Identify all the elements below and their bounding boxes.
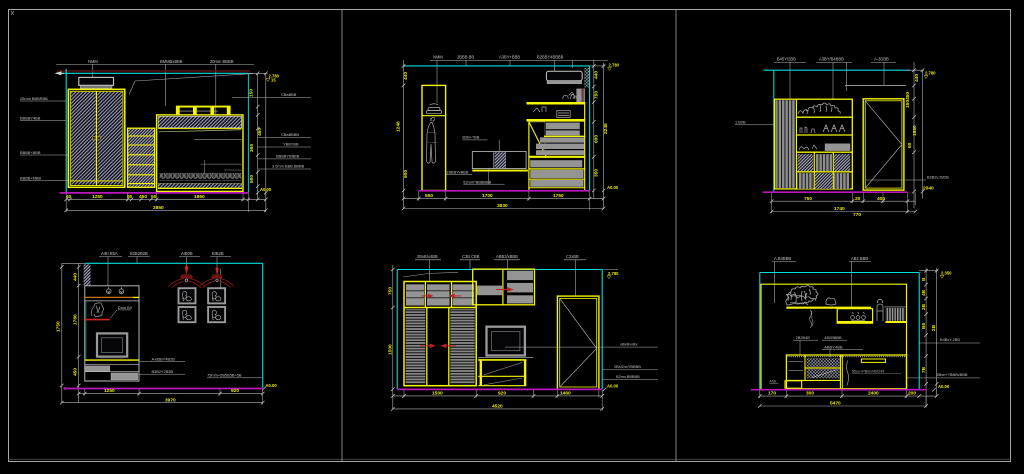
svg-text:A-B5BY4B2B: A-B5BY4B2B [152, 357, 176, 362]
svg-text:xBxBvxBx: xBxBvxBx [620, 341, 638, 346]
svg-text:B2mv.BBBBB: B2mv.BBBBB [616, 374, 640, 379]
svg-text:450: 450 [73, 368, 79, 376]
svg-text:2B: 2B [931, 324, 937, 331]
svg-text:B!B2B: B!B2B [212, 251, 224, 256]
svg-text:CBaBBB: CBaBBB [281, 92, 297, 97]
svg-text:770: 770 [853, 212, 861, 218]
svg-text:C2xBB: C2xBB [566, 254, 579, 259]
svg-text:1750: 1750 [553, 193, 564, 199]
svg-text:BMMBxBBB: BMMBxBBB [160, 59, 183, 64]
svg-text:2B2B4B: 2B2B4B [796, 335, 811, 340]
svg-text:200: 200 [908, 391, 916, 397]
svg-text:2.780: 2.780 [608, 271, 619, 276]
svg-text:YBBYBB: YBBYBB [283, 141, 299, 146]
svg-text:1500: 1500 [387, 344, 393, 355]
svg-text:365: 365 [249, 144, 255, 152]
svg-text:A0.00: A0.00 [607, 185, 619, 190]
svg-text:1850: 1850 [912, 125, 918, 136]
svg-text:B: B [921, 277, 927, 281]
svg-text:350: 350 [594, 169, 600, 177]
svg-text:1750: 1750 [56, 321, 62, 332]
svg-text:CBaBBBB: CBaBBBB [281, 132, 299, 137]
svg-text:A0.00: A0.00 [266, 383, 278, 388]
svg-text:920: 920 [231, 388, 239, 394]
svg-text:BBBBY4BB: BBBBY4BB [20, 115, 41, 120]
svg-text:B2BBY4BBBB: B2BBY4BBBB [537, 55, 564, 60]
svg-text:4B2BBBB: 4B2BBBB [824, 335, 842, 340]
svg-text:750: 750 [804, 196, 812, 202]
svg-text:20mm BBBB: 20mm BBBB [210, 59, 234, 64]
svg-text:1500: 1500 [432, 390, 443, 396]
svg-text:920: 920 [498, 390, 506, 396]
svg-text:3970: 3970 [165, 397, 176, 403]
svg-text:600: 600 [403, 170, 409, 178]
svg-text:3830: 3830 [497, 203, 508, 209]
svg-text:7B: 7B [921, 366, 927, 373]
svg-text:440: 440 [914, 74, 920, 82]
svg-text:450: 450 [139, 194, 147, 200]
svg-text:B5: B5 [921, 323, 927, 329]
svg-text:NMM: NMM [88, 59, 98, 64]
svg-text:NMM: NMM [433, 55, 443, 60]
svg-text:400: 400 [877, 196, 885, 202]
svg-text:150450: 150450 [905, 92, 911, 108]
svg-text:450: 450 [257, 128, 263, 136]
svg-text:1780: 1780 [73, 314, 79, 325]
svg-text:A3BY/B4BBB: A3BY/B4BBB [819, 57, 844, 62]
svg-text:440: 440 [403, 72, 409, 80]
svg-text:5Bxn+7BBBvBBB: 5Bxn+7BBBvBBB [937, 372, 968, 377]
svg-text:2.780: 2.780 [925, 71, 936, 76]
svg-text:A0.00: A0.00 [938, 384, 950, 389]
svg-text:4B: 4B [921, 289, 927, 296]
svg-text:750: 750 [387, 287, 393, 295]
svg-text:1BBBYvBBB: 1BBBYvBBB [446, 169, 468, 174]
svg-text:52mm*BBBBBB: 52mm*BBBBBB [463, 179, 491, 184]
svg-text:15: 15 [271, 78, 276, 83]
svg-text:BBBBYBBBB: BBBBYBBBB [276, 153, 300, 158]
svg-text:3.5mm BBB.BBBB: 3.5mm BBB.BBBB [272, 163, 305, 168]
svg-text:20: 20 [855, 196, 861, 202]
svg-text:B2B2B2B: B2B2B2B [130, 251, 148, 256]
svg-text:ABB2/xBBB: ABB2/xBBB [496, 254, 518, 259]
svg-text:170: 170 [768, 391, 776, 397]
svg-text:Dmn BX: Dmn BX [118, 305, 133, 310]
svg-text:1460: 1460 [560, 390, 571, 396]
svg-text:2850: 2850 [153, 205, 164, 211]
svg-text:750: 750 [594, 91, 600, 99]
svg-text:A0.00: A0.00 [260, 187, 272, 192]
svg-text:A5B: A5B [770, 380, 777, 384]
svg-text:BBBB+MBB: BBBB+MBB [20, 175, 41, 180]
svg-text:5470: 5470 [830, 401, 841, 407]
svg-text:A0.00: A0.00 [607, 384, 619, 389]
svg-text:25mm BBBRBB: 25mm BBBRBB [20, 96, 48, 101]
svg-text:1250: 1250 [92, 194, 103, 200]
svg-text:2040: 2040 [923, 186, 934, 192]
svg-text:2.350: 2.350 [941, 270, 952, 275]
svg-text:A.B4BBB: A.B4BBB [774, 256, 791, 261]
svg-text:60: 60 [907, 142, 913, 148]
svg-text:2Bx/2xxYBBBB: 2Bx/2xxYBBBB [614, 364, 641, 369]
svg-text:1740: 1740 [834, 206, 845, 212]
svg-text:440: 440 [594, 71, 600, 79]
svg-text:B2B2v.2B2B: B2B2v.2B2B [927, 174, 949, 179]
svg-text:550: 550 [425, 193, 433, 199]
svg-text:4520: 4520 [492, 404, 503, 410]
svg-text:2.780: 2.780 [609, 63, 620, 68]
svg-text:B2B+?BB: B2B+?BB [462, 134, 479, 139]
svg-text:500: 500 [249, 175, 255, 183]
svg-text:90: 90 [127, 194, 133, 200]
svg-text:1860: 1860 [194, 194, 205, 200]
svg-text:1700: 1700 [482, 193, 493, 199]
svg-text:B4BxY.2BB: B4BxY.2BB [940, 337, 960, 342]
svg-text:2BBB.BB: 2BBB.BB [457, 55, 474, 60]
svg-text:A!B!.B5A: A!B!.B5A [101, 251, 118, 256]
svg-text:C2B.CBB: C2B.CBB [462, 254, 480, 259]
svg-text:600: 600 [594, 135, 600, 143]
svg-text:B3B2Y2B5B: B3B2Y2B5B [152, 369, 174, 374]
svg-text:B45Y/2BB: B45Y/2BB [777, 57, 796, 62]
svg-text:50: 50 [151, 194, 157, 200]
svg-text:75mm+5B5B5B+5B: 75mm+5B5B5B+5B [207, 373, 242, 378]
svg-text:1248: 1248 [396, 121, 402, 132]
svg-text:AB2.BBB: AB2.BBB [851, 256, 868, 261]
svg-text:40: 40 [66, 194, 72, 200]
svg-text:150: 150 [249, 89, 255, 97]
svg-text:2248: 2248 [603, 123, 609, 134]
svg-text:440: 440 [73, 273, 79, 281]
svg-text:2400: 2400 [868, 391, 879, 397]
svg-text:ABBY.4BB: ABBY.4BB [824, 344, 843, 349]
svg-text:1250: 1250 [104, 388, 115, 394]
svg-text:5Dun+PBmxVBChM: 5Dun+PBmxVBChM [852, 370, 885, 374]
svg-text:A-3DBB: A-3DBB [874, 57, 889, 62]
svg-text:2BxB/x4BB: 2BxB/x4BB [417, 254, 438, 259]
svg-text:A3BY+BBB: A3BY+BBB [499, 55, 520, 60]
svg-text:BBBB+BBB: BBBB+BBB [20, 150, 41, 155]
svg-text:2B: 2B [921, 303, 927, 310]
svg-text:A!B0B: A!B0B [181, 251, 193, 256]
svg-text:1:B2B: 1:B2B [735, 120, 746, 125]
svg-text:300: 300 [806, 391, 814, 397]
